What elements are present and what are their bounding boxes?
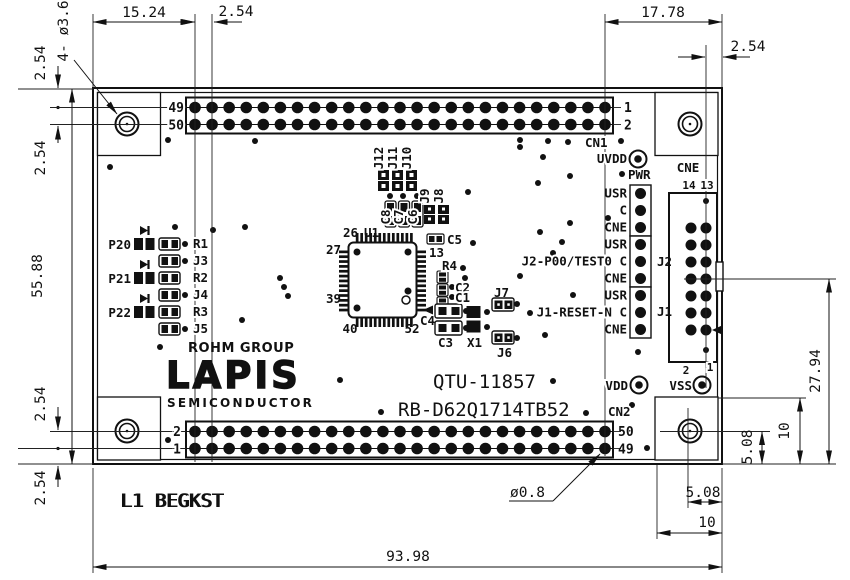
c1-label: C1 (455, 290, 470, 305)
jrow-cne3: CNE (604, 322, 627, 337)
j10-label: J10 (399, 147, 414, 170)
bottom-silk-text-overprint: L1 BEGKST (122, 490, 225, 512)
jrow-j2-net: J2-P00/TEST0 C (522, 254, 627, 269)
cn2-pin50: 50 (618, 425, 634, 440)
testpoint-vdd (631, 377, 648, 394)
cn1-pin49: 49 (168, 101, 184, 116)
dim-br-vert-big: 10 (777, 422, 793, 439)
jrow-usr2: USR (604, 237, 627, 252)
r4-label: R4 (442, 258, 457, 273)
c6-label: C6 (405, 209, 420, 224)
j1-label: J1 (657, 304, 672, 319)
vss-label: VSS (669, 378, 692, 393)
jrow-cne2: CNE (604, 271, 627, 286)
cne-pin2: 2 (683, 364, 690, 377)
jrow-j1-net: J1-RESET-N C (537, 305, 627, 320)
cn1-pin1: 1 (624, 101, 632, 116)
cne-pin1: 1 (707, 361, 714, 374)
cn1-pin50: 50 (168, 119, 184, 134)
pwr-label: PWR (628, 167, 651, 182)
edge-notch (716, 262, 723, 291)
dim-top-right-edge: 2.54 (731, 39, 766, 55)
drawing-canvas: 15.24 2.54 17.78 2.54 2.54 2.54 55.88 2.… (0, 0, 850, 580)
j5-label: J5 (193, 321, 208, 336)
uvdd-label: UVDD (597, 151, 627, 166)
dim-board-width: 93.98 (386, 549, 430, 565)
cne-label: CNE (677, 160, 700, 175)
testpoint-vss (694, 377, 711, 394)
cn2-pin1: 1 (173, 443, 181, 458)
j11-label: J11 (385, 147, 400, 170)
dim-br-horiz-big: 10 (698, 515, 715, 531)
c3-label: C3 (438, 335, 453, 350)
u1-pin52: 52 (404, 321, 419, 336)
cn2-pin49: 49 (618, 443, 634, 458)
cne-col14: 14 (682, 179, 696, 192)
u1-label: U1 (364, 225, 379, 240)
p22-label: P22 (108, 305, 131, 320)
jrow-usr1: USR (604, 186, 627, 201)
dim-top-right-width: 17.78 (641, 5, 685, 21)
cn2-pin2: 2 (173, 425, 181, 440)
p21-label: P21 (108, 271, 131, 286)
cn1-label: CN1 (585, 135, 608, 150)
dim-left-bottom-a: 2.54 (33, 386, 49, 421)
r1-label: R1 (193, 236, 208, 251)
part-number: RB-D62Q1714TB52 (398, 399, 570, 421)
r3-label: R3 (193, 304, 208, 319)
dim-br-horiz-small: 5.08 (686, 485, 721, 501)
u1-pin39: 39 (326, 291, 341, 306)
mount-hole-note: 4- ø3.6 (56, 0, 72, 61)
board-number: QTU-11857 (433, 371, 536, 393)
j3-label: J3 (193, 253, 208, 268)
semiconductor-logo: SEMICONDUCTOR (167, 396, 314, 410)
dim-right-height: 27.94 (808, 349, 824, 393)
pin1-marker-icon (402, 296, 410, 304)
u1-pin27: 27 (326, 242, 341, 257)
j12-label: J12 (371, 147, 386, 170)
j9-label: J9 (417, 188, 432, 203)
cne-col13: 13 (700, 179, 713, 192)
r2-label: R2 (193, 270, 208, 285)
j2-label: J2 (657, 254, 672, 269)
dim-top-left-width: 15.24 (122, 5, 166, 21)
x1-label: X1 (467, 335, 482, 350)
dim-left-top-a: 2.54 (33, 45, 49, 80)
dim-board-height: 55.88 (30, 254, 46, 298)
cn2-label: CN2 (608, 404, 631, 419)
jrow-cne1: CNE (604, 220, 627, 235)
vdd-label: VDD (605, 378, 628, 393)
j8-label: J8 (431, 188, 446, 203)
dim-left-top-b: 2.54 (33, 140, 49, 175)
jrow-c1: C (619, 203, 627, 218)
jrow-usr3: USR (604, 288, 627, 303)
dim-top-pitch: 2.54 (219, 4, 254, 20)
c7-label: C7 (391, 209, 406, 224)
c4-label: C4 (420, 313, 435, 328)
j4-label: J4 (193, 287, 208, 302)
c5-label: C5 (447, 232, 462, 247)
j6-label: J6 (497, 345, 512, 360)
u1-pin40: 40 (342, 321, 357, 336)
pin-hole-dia: ø0.8 (510, 485, 545, 501)
cn1-pin2: 2 (624, 119, 632, 134)
dim-left-bottom-b: 2.54 (33, 470, 49, 505)
u1-pin26: 26 (343, 225, 358, 240)
dim-br-vert-small: 5.08 (740, 430, 756, 465)
testpoint-uvdd (630, 151, 647, 168)
pcb-dimension-drawing: 15.24 2.54 17.78 2.54 2.54 2.54 55.88 2.… (0, 0, 850, 580)
u1-qfp-chip (339, 233, 426, 327)
j7-label: J7 (494, 285, 509, 300)
p20-label: P20 (108, 237, 131, 252)
lapis-logo: LAPIS (166, 354, 301, 397)
